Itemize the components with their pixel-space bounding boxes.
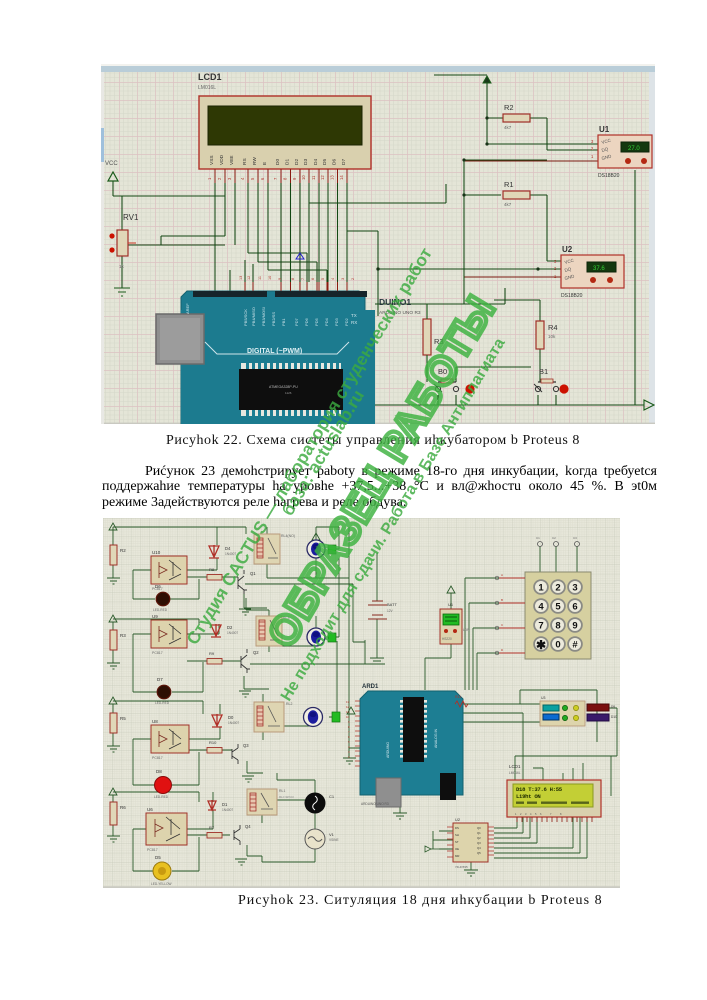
svg-text:Не подходит для сдачи. Работа: Не подходит для сдачи. Работа в Базе Ант… [278,335,509,704]
